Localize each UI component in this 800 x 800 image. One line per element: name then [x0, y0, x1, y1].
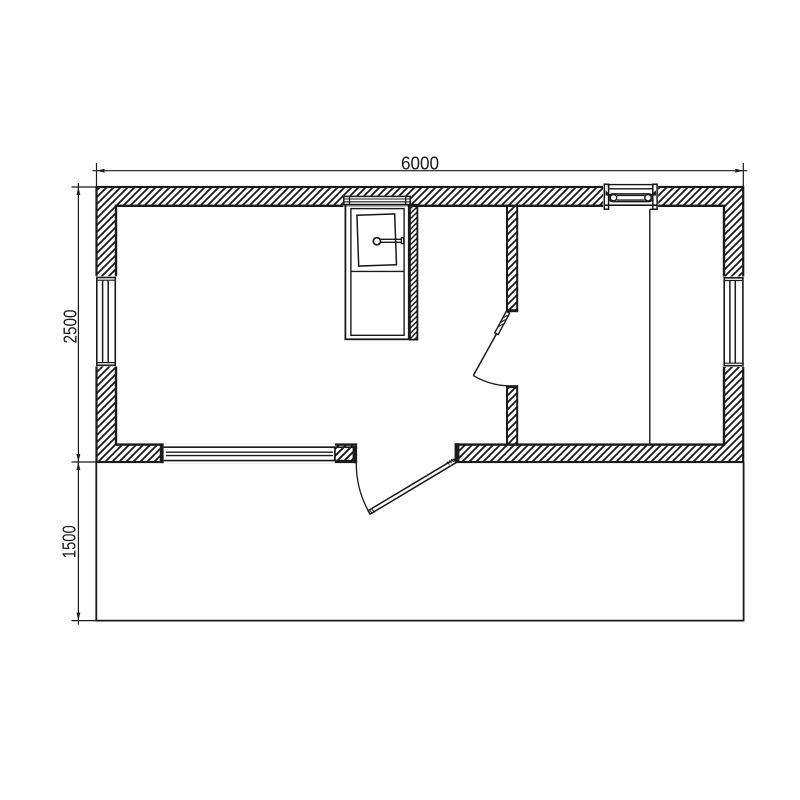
svg-text:2500: 2500: [61, 310, 81, 344]
svg-text:1500: 1500: [60, 525, 80, 558]
svg-text:6000: 6000: [401, 153, 439, 173]
